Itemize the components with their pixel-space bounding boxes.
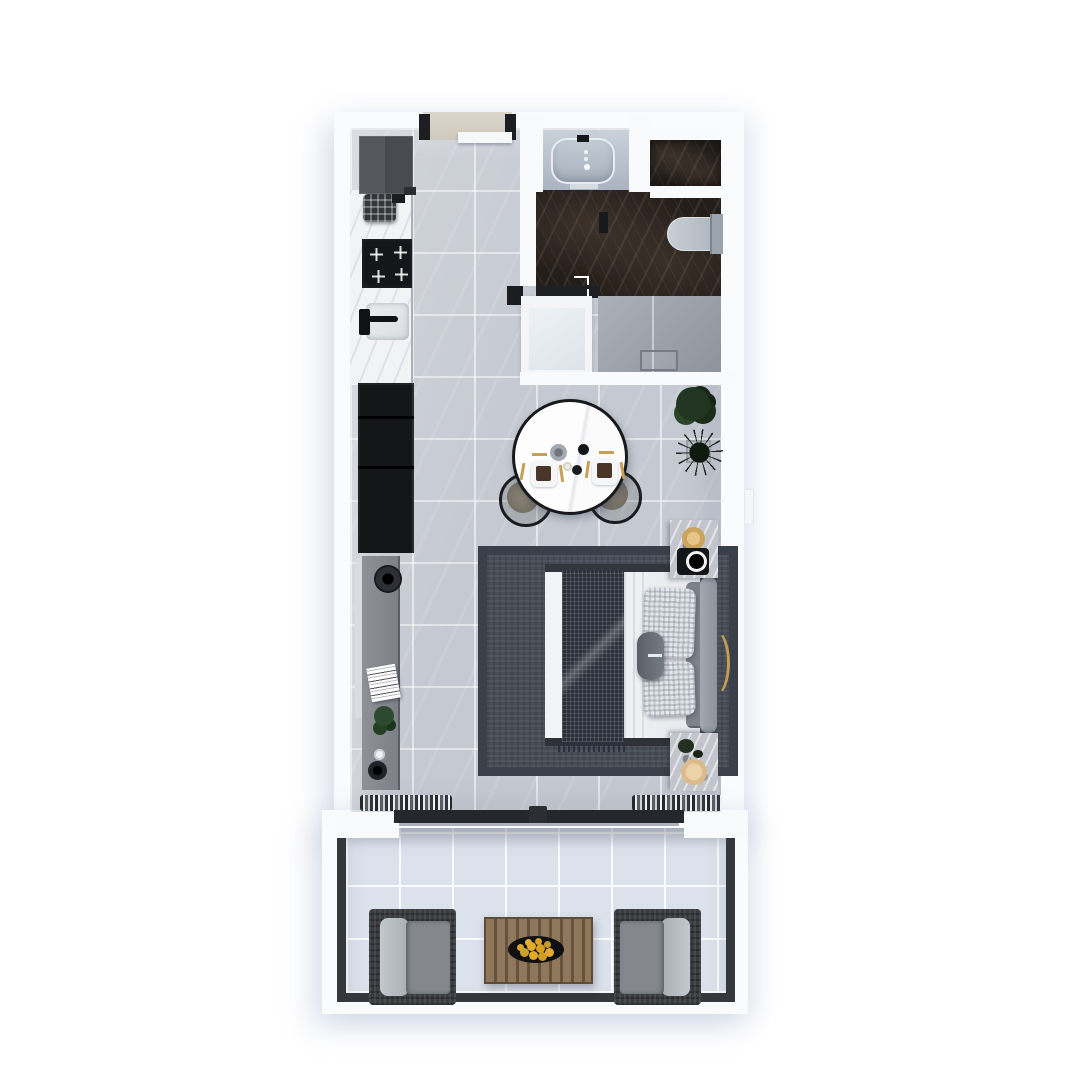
bolster-band	[648, 654, 662, 657]
sliding-door-handle	[529, 806, 547, 823]
wall-pier-left	[337, 812, 399, 838]
fruit-tray	[508, 936, 564, 963]
spiky-plant	[676, 429, 723, 476]
curtain-left	[360, 795, 452, 811]
balcony-door-shadow	[346, 828, 726, 848]
armchair-right-back-cushion	[661, 918, 690, 996]
wardrobe-shelf-2	[358, 466, 414, 469]
napkin-southwest	[536, 466, 551, 481]
table-cup-black-1	[578, 444, 589, 455]
armchair-left-seat-cushion	[406, 921, 450, 994]
bathtub-niche-left-wall	[533, 115, 543, 192]
burner-icon-1	[370, 248, 383, 261]
kitchen-small-appliance	[392, 194, 405, 203]
console-cup	[374, 749, 385, 760]
bathroom-divider-wall	[629, 115, 650, 192]
wardrobe-shelf-1	[358, 416, 414, 419]
curtain-right	[632, 795, 722, 811]
armchair-left-back-cushion	[380, 918, 409, 996]
bathtub-faucet-icon	[577, 135, 589, 142]
entry-door-leaf	[458, 132, 512, 143]
niche-bottom-wall	[650, 186, 721, 198]
nightstand-speaker-ring	[686, 551, 707, 572]
armchair-right-seat-cushion	[620, 921, 664, 994]
nightstand-lamp	[682, 527, 705, 550]
fridge	[359, 136, 413, 194]
throw-fringe	[558, 742, 626, 752]
vanity-basin	[529, 308, 585, 370]
balcony-railing-left	[337, 834, 346, 1002]
console-speaker	[374, 565, 402, 593]
bathtub-step	[570, 184, 598, 189]
niche-top-wall	[650, 128, 721, 140]
console-bowl	[368, 761, 387, 780]
sink-faucet-arm	[368, 316, 398, 322]
burner-icon-3	[372, 270, 385, 283]
toilet	[667, 217, 713, 251]
table-candle	[563, 462, 572, 471]
door-hinge-mark-1	[574, 276, 589, 285]
table-plate-gray	[550, 444, 567, 461]
toilet-tank	[710, 214, 723, 254]
bathtub	[551, 138, 615, 184]
magazines	[366, 664, 400, 703]
bathtub-drain-dots	[584, 150, 588, 154]
balcony-railing-right	[726, 834, 735, 1002]
dining-table	[512, 399, 628, 515]
fruit-cluster	[527, 942, 536, 951]
bathroom-bottom-wall	[520, 372, 741, 385]
sliding-door-glass	[399, 823, 679, 826]
shower-drain	[640, 350, 678, 371]
fridge-handle	[404, 187, 416, 195]
entry-door-jamb-left	[419, 114, 430, 140]
floor-lamp-arc	[701, 630, 730, 696]
sink-faucet-base	[359, 309, 370, 335]
nightstand-plant-sprigs	[678, 739, 694, 753]
spoon-southeast	[599, 451, 614, 454]
bushy-plant	[676, 387, 710, 421]
napkin-southeast	[597, 463, 612, 478]
nightstand-tan-bowl	[681, 759, 707, 785]
floorplan-canvas	[0, 0, 1080, 1080]
wall-pier-right	[684, 812, 747, 838]
burner-icon-2	[394, 246, 407, 259]
exterior-wall-stub	[744, 489, 754, 525]
burner-icon-4	[395, 268, 408, 281]
storage-niche	[650, 140, 721, 186]
table-cup-black-2	[572, 465, 582, 475]
spoon-southwest	[532, 453, 547, 456]
console-plant	[374, 706, 394, 726]
bathroom-door-jamb	[599, 212, 608, 233]
throw-blanket	[562, 570, 624, 742]
